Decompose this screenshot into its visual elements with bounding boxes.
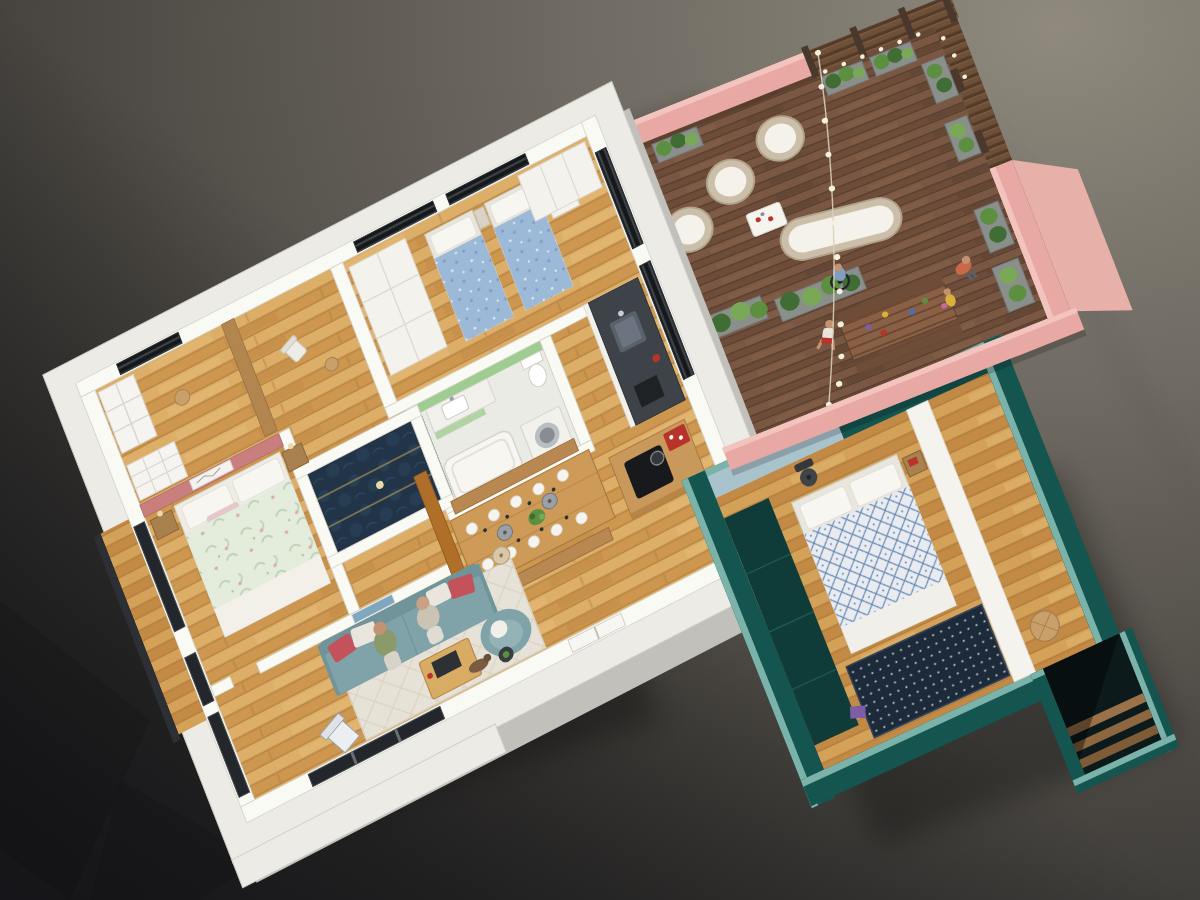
- apartment-3d-floorplan: [0, 0, 1200, 900]
- floorplan-render-stage: [0, 0, 1200, 900]
- purple-cushion: [850, 706, 866, 719]
